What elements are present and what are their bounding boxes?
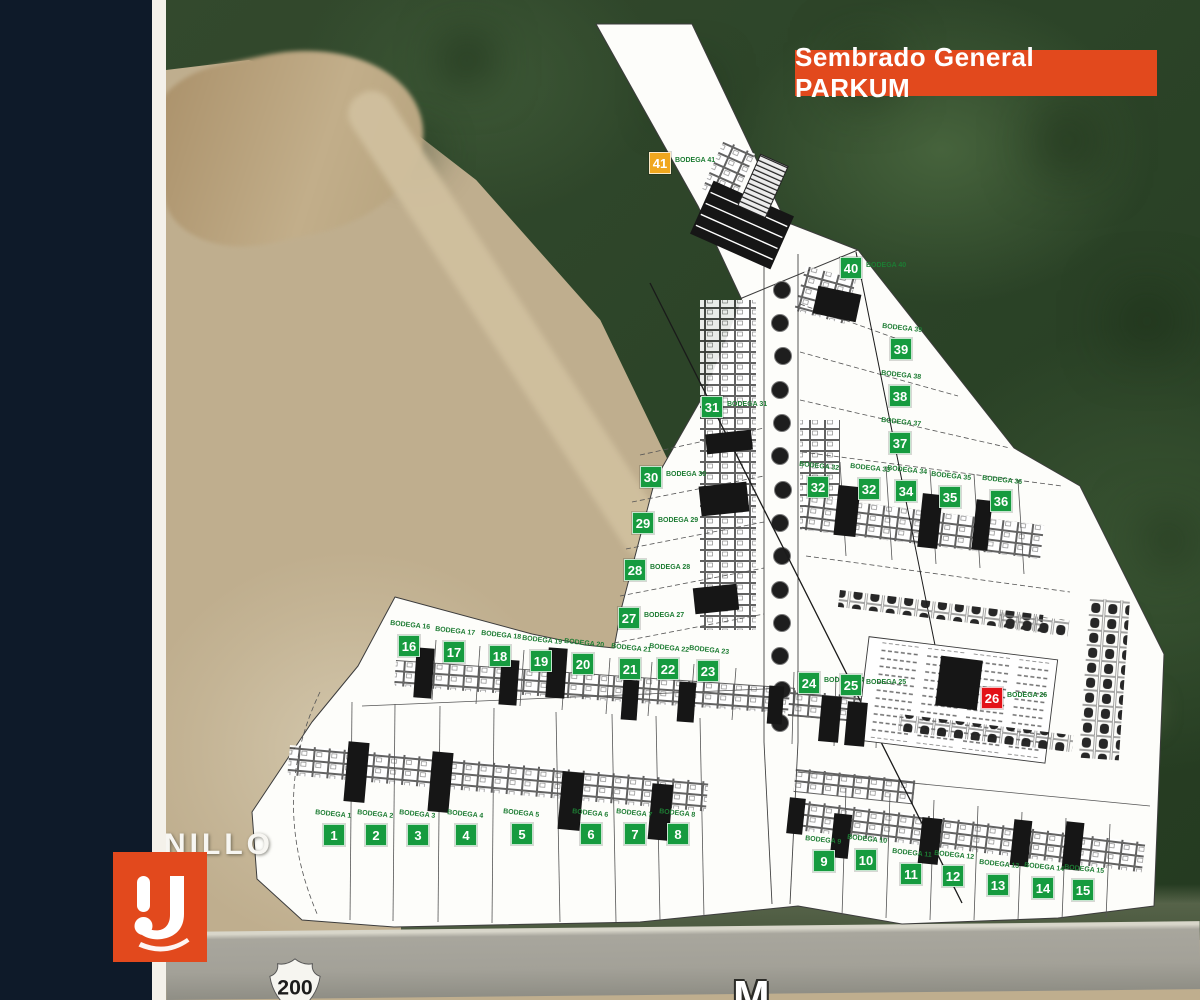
lot-label: BODEGA 2 bbox=[357, 809, 394, 820]
lot-label: BODEGA 15 bbox=[1064, 864, 1105, 875]
lot-label: BODEGA 10 bbox=[847, 834, 888, 845]
lot-label: BODEGA 29 bbox=[658, 517, 698, 524]
lot-label: BODEGA 12 bbox=[934, 850, 975, 861]
lot-label: BODEGA 31 bbox=[727, 401, 767, 408]
lot-badge-bodega-18[interactable]: 18 bbox=[489, 645, 511, 667]
lot-badge-bodega-39[interactable]: 39 bbox=[890, 338, 912, 360]
lot-badge-bodega-14[interactable]: 14 bbox=[1032, 877, 1054, 899]
lot-badge-bodega-23[interactable]: 23 bbox=[697, 660, 719, 682]
lot-badge-bodega-37[interactable]: 37 bbox=[889, 432, 911, 454]
lot-badge-bodega-15[interactable]: 15 bbox=[1072, 879, 1094, 901]
lot-badge-bodega-17[interactable]: 17 bbox=[443, 641, 465, 663]
lot-badge-bodega-22[interactable]: 22 bbox=[657, 658, 679, 680]
lot-badge-bodega-38[interactable]: 38 bbox=[889, 385, 911, 407]
shield-number: 200 bbox=[277, 976, 312, 1000]
lot-badge-bodega-21[interactable]: 21 bbox=[619, 658, 641, 680]
lot-badge-bodega-19[interactable]: 19 bbox=[530, 650, 552, 672]
lot-badge-bodega-2[interactable]: 2 bbox=[365, 824, 387, 846]
lot-label: BODEGA 36 bbox=[982, 475, 1023, 486]
lot-label: BODEGA 13 bbox=[979, 859, 1020, 870]
lot-label: BODEGA 34 bbox=[887, 465, 928, 476]
lot-badge-bodega-13[interactable]: 13 bbox=[987, 874, 1009, 896]
lot-badge-bodega-30[interactable]: 30 bbox=[640, 466, 662, 488]
lot-label: BODEGA 26 bbox=[1007, 692, 1047, 699]
lot-badge-bodega-28[interactable]: 28 bbox=[624, 559, 646, 581]
plan-title-banner: Sembrado General PARKUM bbox=[795, 50, 1157, 96]
lot-label: BODEGA 37 bbox=[881, 417, 922, 428]
lot-label: BODEGA 14 bbox=[1024, 862, 1065, 873]
lot-label: BODEGA 39 bbox=[882, 323, 923, 334]
lot-label: BODEGA 23 bbox=[689, 645, 730, 656]
u-monogram-icon bbox=[113, 852, 207, 962]
lot-badge-bodega-41[interactable]: 41 bbox=[649, 152, 671, 174]
lot-badge-bodega-33[interactable]: 32 bbox=[858, 478, 880, 500]
lot-label: BODEGA 5 bbox=[503, 808, 540, 819]
lot-label: BODEGA 33 bbox=[850, 463, 891, 474]
company-logo[interactable] bbox=[113, 852, 207, 962]
lot-label: BODEGA 4 bbox=[447, 809, 484, 820]
lot-label: BODEGA 28 bbox=[650, 564, 690, 571]
lot-badge-bodega-10[interactable]: 10 bbox=[855, 849, 877, 871]
lot-label: BODEGA 8 bbox=[659, 808, 696, 819]
plan-title: Sembrado General PARKUM bbox=[795, 42, 1157, 104]
lot-label: BODEGA 19 bbox=[522, 635, 563, 646]
lot-badge-bodega-7[interactable]: 7 bbox=[624, 823, 646, 845]
lot-badge-bodega-11[interactable]: 11 bbox=[900, 863, 922, 885]
lot-badge-bodega-36[interactable]: 36 bbox=[990, 490, 1012, 512]
lot-label: BODEGA 7 bbox=[616, 808, 653, 819]
lot-label: BODEGA 30 bbox=[666, 471, 706, 478]
lot-label: BODEGA 1 bbox=[315, 809, 352, 820]
highway-200-shield: 200 bbox=[266, 957, 324, 1000]
lot-label: BODEGA 21 bbox=[611, 643, 652, 654]
lot-label: BODEGA 17 bbox=[435, 626, 476, 637]
lot-label: BODEGA 38 bbox=[881, 370, 922, 381]
lot-label: BODEGA 18 bbox=[481, 630, 522, 641]
lot-badge-bodega-26[interactable]: 26 bbox=[981, 687, 1003, 709]
lot-badge-bodega-3[interactable]: 3 bbox=[407, 824, 429, 846]
lot-label: BODEGA 11 bbox=[892, 848, 932, 859]
lot-badge-bodega-24[interactable]: 24 bbox=[798, 672, 820, 694]
lot-badge-bodega-1[interactable]: 1 bbox=[323, 824, 345, 846]
divider-strip bbox=[152, 0, 166, 1000]
lot-badge-bodega-34[interactable]: 34 bbox=[895, 480, 917, 502]
lot-label: BODEGA 25 bbox=[866, 679, 906, 686]
lot-label: BODEGA 9 bbox=[805, 835, 842, 846]
lot-badge-bodega-35[interactable]: 35 bbox=[939, 486, 961, 508]
lot-badge-bodega-31[interactable]: 31 bbox=[701, 396, 723, 418]
lot-label: BODEGA 40 bbox=[866, 262, 906, 269]
lot-badge-bodega-6[interactable]: 6 bbox=[580, 823, 602, 845]
lot-badge-bodega-5[interactable]: 5 bbox=[511, 823, 533, 845]
lot-badge-bodega-32[interactable]: 32 bbox=[807, 476, 829, 498]
lot-badge-bodega-20[interactable]: 20 bbox=[572, 653, 594, 675]
lot-badge-bodega-12[interactable]: 12 bbox=[942, 865, 964, 887]
lot-label: BODEGA 20 bbox=[564, 638, 605, 649]
lot-label: BODEGA 16 bbox=[390, 620, 431, 631]
lot-badge-bodega-40[interactable]: 40 bbox=[840, 257, 862, 279]
lot-badge-bodega-16[interactable]: 16 bbox=[398, 635, 420, 657]
lot-badge-bodega-4[interactable]: 4 bbox=[455, 824, 477, 846]
lot-badge-bodega-8[interactable]: 8 bbox=[667, 823, 689, 845]
lot-label: BODEGA 6 bbox=[572, 808, 609, 819]
lot-label: BODEGA 41 bbox=[675, 157, 715, 164]
lot-badge-bodega-25[interactable]: 25 bbox=[840, 674, 862, 696]
road-name-letter: M bbox=[733, 972, 770, 1000]
lot-badge-bodega-27[interactable]: 27 bbox=[618, 607, 640, 629]
screenshot-stage: 1BODEGA 12BODEGA 23BODEGA 34BODEGA 45BOD… bbox=[0, 0, 1200, 1000]
lot-label: BODEGA 35 bbox=[931, 471, 972, 482]
lot-label: BODEGA 27 bbox=[644, 612, 684, 619]
lot-badge-bodega-29[interactable]: 29 bbox=[632, 512, 654, 534]
lot-badge-bodega-9[interactable]: 9 bbox=[813, 850, 835, 872]
lot-label: BODEGA 22 bbox=[649, 643, 690, 654]
lot-label: BODEGA 3 bbox=[399, 809, 436, 820]
lot-label: BODEGA 32 bbox=[799, 461, 840, 472]
left-sidebar bbox=[0, 0, 152, 1000]
